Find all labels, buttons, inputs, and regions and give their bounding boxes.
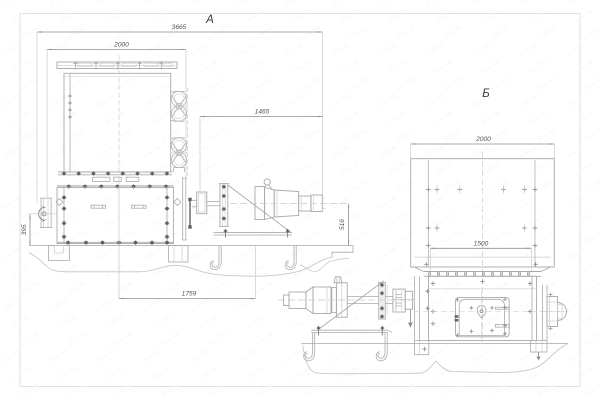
svg-text:1465: 1465 — [255, 109, 270, 116]
svg-text:395: 395 — [21, 224, 28, 235]
svg-text:1759: 1759 — [182, 291, 197, 298]
svg-text:3665: 3665 — [172, 24, 187, 31]
svg-text:2000: 2000 — [475, 136, 491, 143]
svg-text:2000: 2000 — [113, 41, 129, 48]
svg-text:516: 516 — [339, 219, 346, 230]
svg-text:А: А — [205, 14, 214, 26]
svg-text:1500: 1500 — [474, 240, 489, 247]
svg-text:Б: Б — [482, 88, 490, 100]
